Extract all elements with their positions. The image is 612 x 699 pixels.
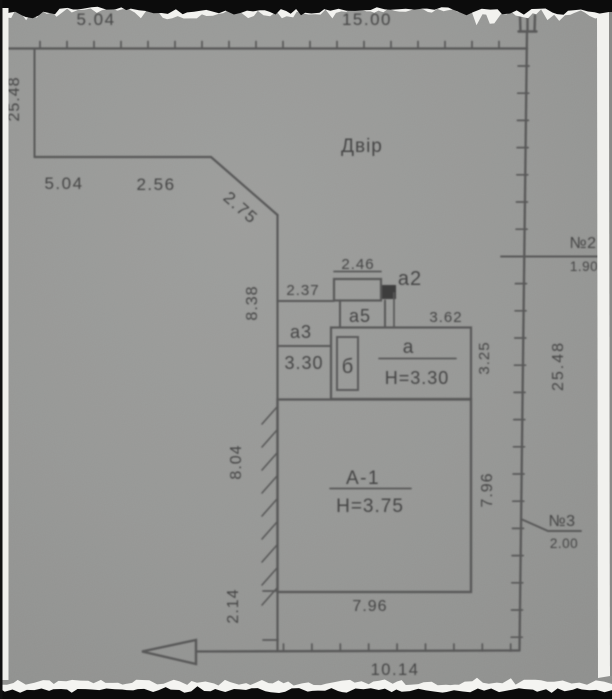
svg-text:а5: а5 — [349, 306, 371, 326]
svg-text:3.25: 3.25 — [476, 341, 493, 374]
svg-text:7.96: 7.96 — [479, 472, 496, 507]
svg-text:А-1: А-1 — [346, 468, 380, 489]
svg-text:5.04: 5.04 — [44, 174, 83, 193]
svg-text:25.48: 25.48 — [6, 76, 23, 121]
svg-text:а: а — [403, 337, 414, 358]
svg-text:Н=3.75: Н=3.75 — [336, 496, 404, 517]
svg-text:8.04: 8.04 — [228, 444, 245, 479]
svg-text:2.14: 2.14 — [225, 588, 242, 623]
svg-text:15.00: 15.00 — [342, 10, 392, 29]
svg-text:3.30: 3.30 — [284, 353, 323, 373]
svg-text:Двір: Двір — [341, 136, 383, 157]
svg-text:2.37: 2.37 — [286, 282, 319, 299]
svg-text:№3: №3 — [548, 513, 575, 530]
svg-text:№2: №2 — [569, 235, 596, 252]
svg-text:а2: а2 — [398, 268, 422, 290]
svg-text:25.48: 25.48 — [550, 341, 567, 391]
svg-text:10.14: 10.14 — [371, 661, 420, 679]
svg-text:а3: а3 — [290, 322, 312, 342]
svg-text:1.90: 1.90 — [570, 259, 598, 274]
svg-text:5.04: 5.04 — [76, 10, 115, 29]
svg-text:8.38: 8.38 — [244, 285, 261, 320]
svg-text:б: б — [342, 356, 353, 378]
svg-text:7.96: 7.96 — [352, 598, 387, 615]
svg-text:Н=3.30: Н=3.30 — [385, 368, 450, 388]
svg-text:2.00: 2.00 — [550, 536, 578, 551]
svg-text:2.56: 2.56 — [136, 175, 175, 194]
svg-text:2.46: 2.46 — [341, 256, 374, 273]
svg-text:3.62: 3.62 — [429, 309, 462, 326]
